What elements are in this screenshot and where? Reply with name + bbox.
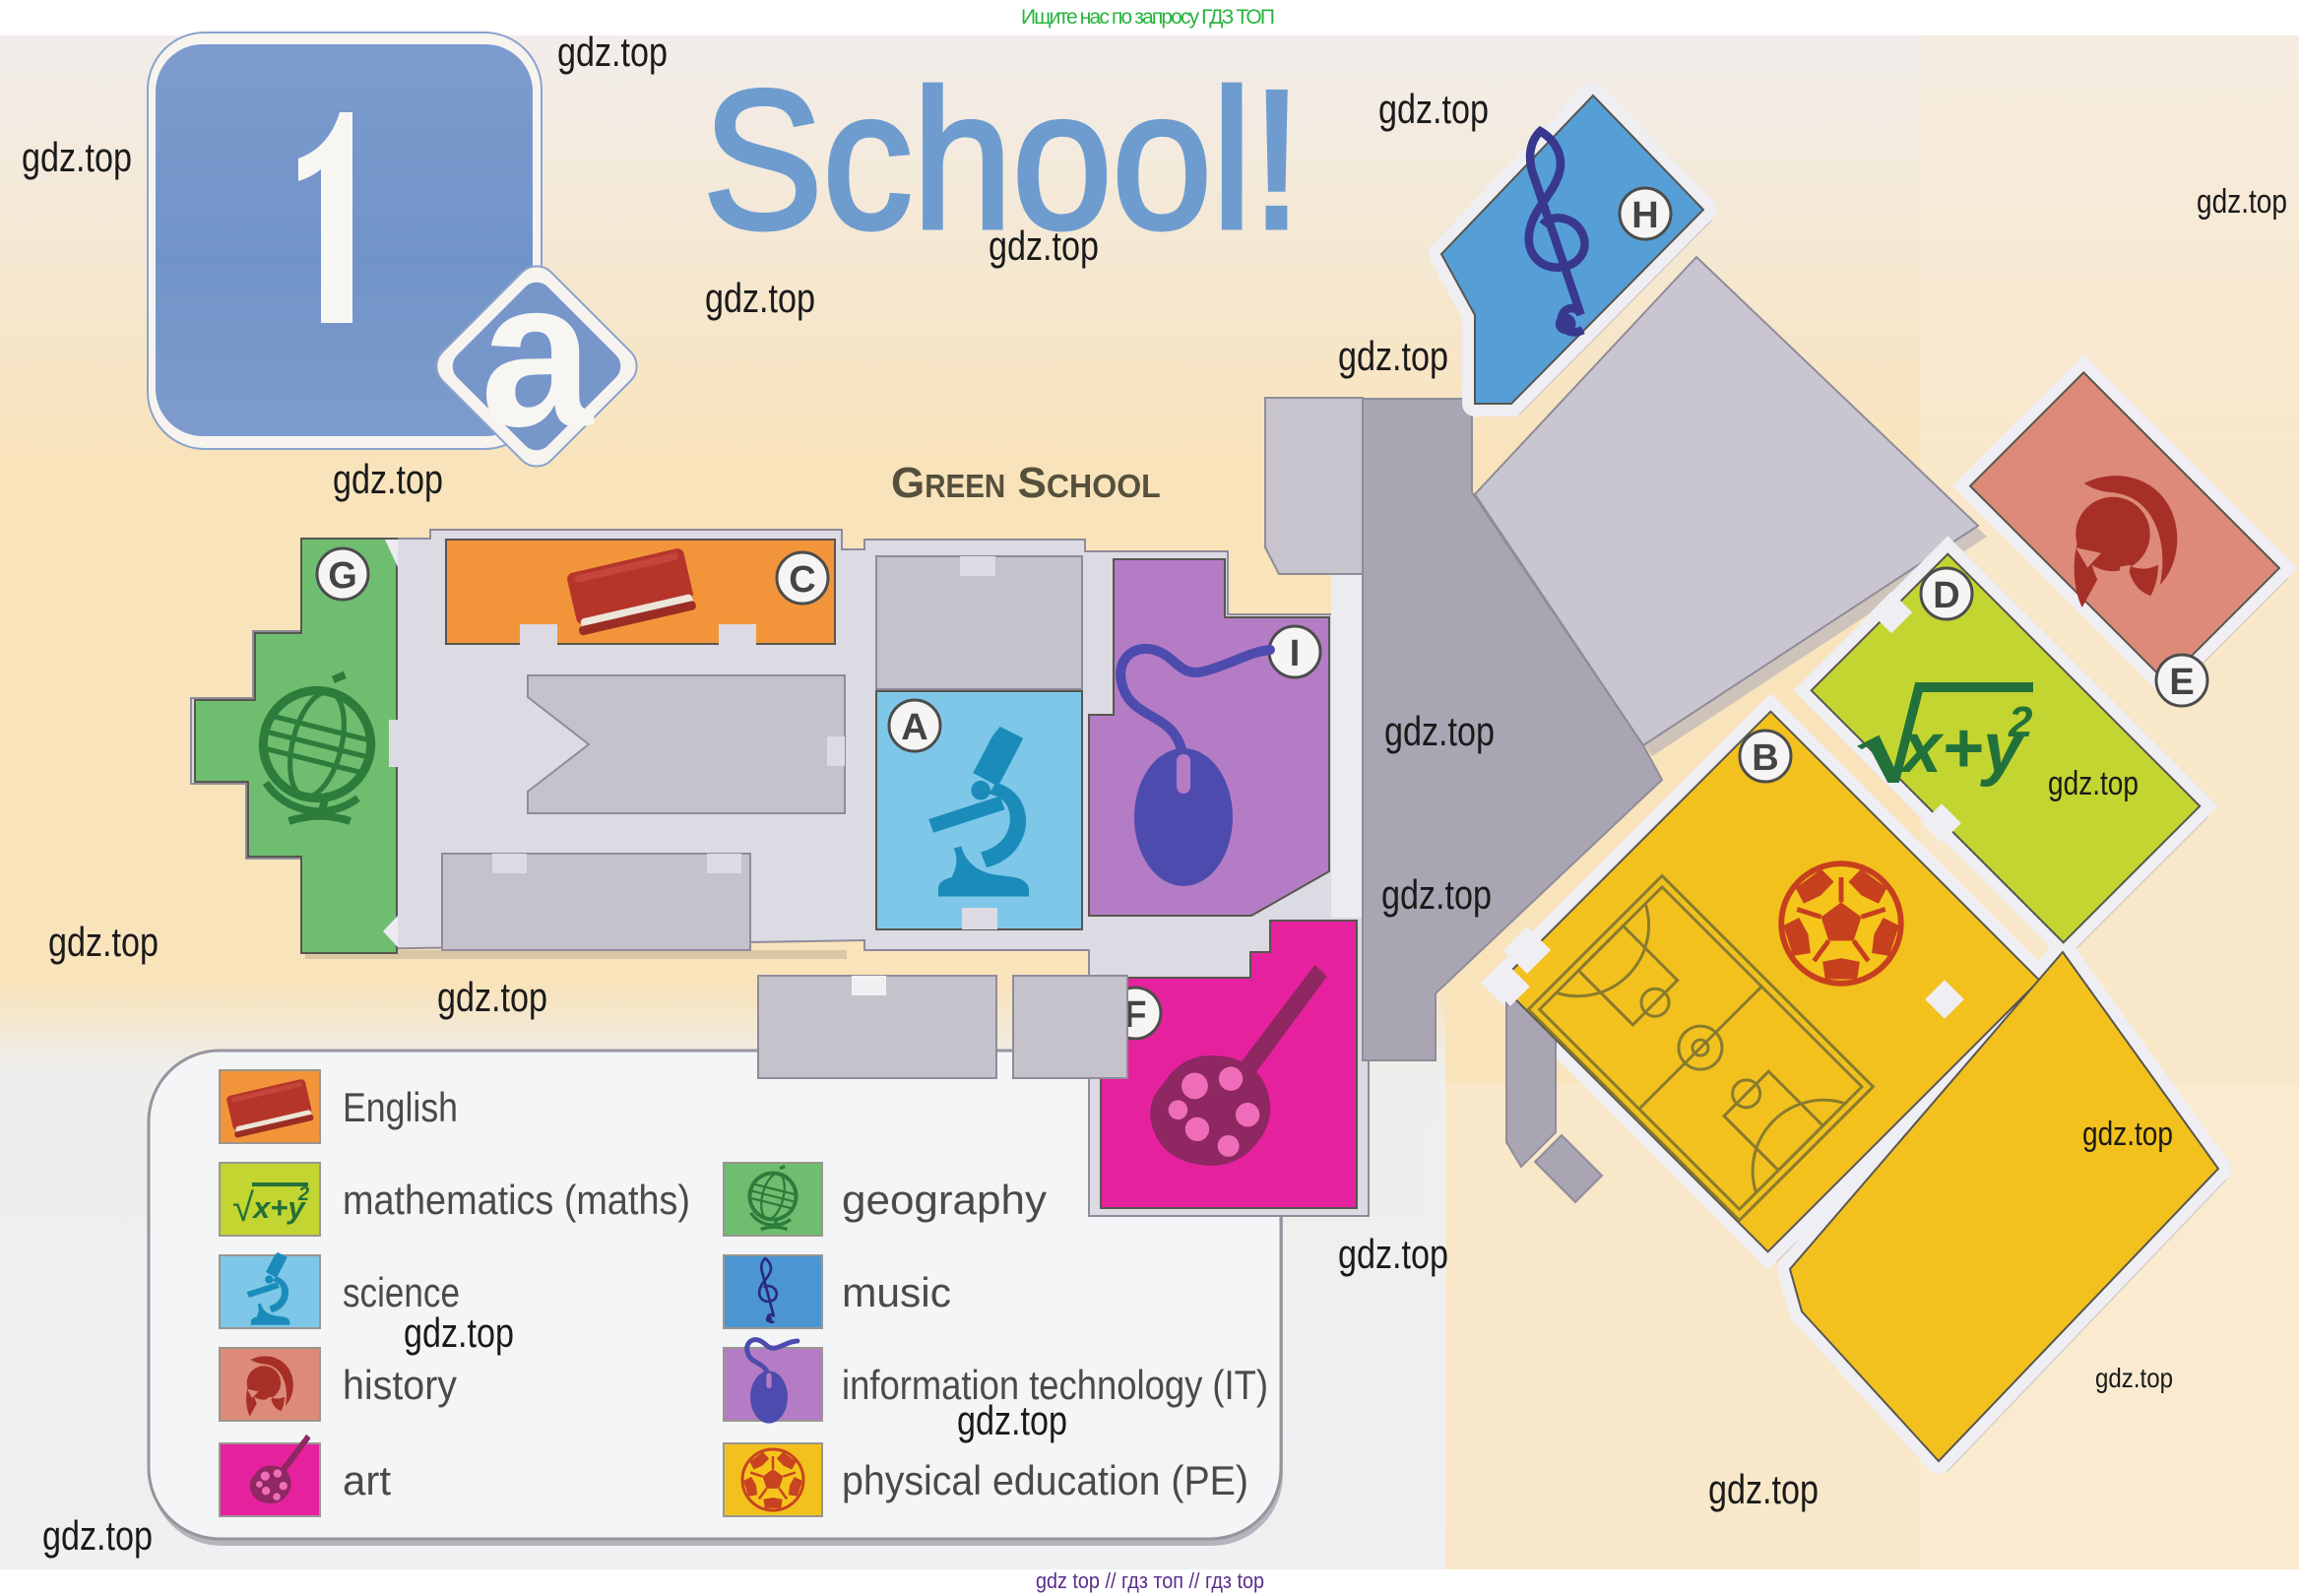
svg-text:gdz.top: gdz.top [557,29,668,75]
svg-text:gdz.top: gdz.top [1381,871,1492,918]
svg-text:gdz.top: gdz.top [1338,1231,1448,1277]
svg-text:2: 2 [297,1183,309,1205]
svg-text:E: E [2169,662,2194,703]
svg-text:gdz.top: gdz.top [22,134,132,180]
svg-text:gdz.top: gdz.top [1708,1466,1819,1512]
svg-text:geography: geography [842,1177,1047,1223]
svg-text:A: A [901,707,927,748]
svg-text:gdz.top: gdz.top [957,1397,1067,1443]
svg-text:√: √ [232,1186,254,1230]
svg-text:gdz.top: gdz.top [1378,86,1489,132]
svg-text:gdz.top: gdz.top [1384,708,1495,754]
svg-text:gdz.top: gdz.top [333,456,443,502]
svg-text:Ищите нас по запросу ГДЗ ТОП: Ищите нас по запросу ГДЗ ТОП [1021,6,1275,29]
svg-text:gdz.top: gdz.top [2048,765,2139,802]
svg-text:gdz.top: gdz.top [437,974,547,1020]
svg-text:art: art [343,1457,391,1503]
svg-text:gdz.top: gdz.top [1338,333,1448,379]
svg-text:a: a [480,236,595,470]
svg-text:gdz.top: gdz.top [42,1512,153,1559]
svg-text:H: H [1631,195,1658,236]
svg-text:C: C [789,559,815,601]
svg-text:gdz.top: gdz.top [48,919,159,965]
svg-text:gdz.top: gdz.top [2197,183,2287,221]
svg-text:science: science [343,1269,460,1315]
svg-text:gdz.top: gdz.top [2095,1363,2173,1393]
svg-text:gdz top // гдз топ // гдз: gdz top // гдз топ // гдз top [1036,1568,1264,1593]
svg-text:mathematics (maths): mathematics (maths) [343,1177,690,1223]
svg-text:D: D [1933,575,1959,616]
svg-text:history: history [343,1362,457,1408]
svg-text:English: English [343,1084,458,1130]
svg-text:2: 2 [2008,698,2033,746]
svg-text:music: music [842,1269,951,1315]
svg-text:B: B [1752,737,1778,779]
svg-text:gdz.top: gdz.top [404,1309,514,1356]
svg-text:gdz.top: gdz.top [705,275,815,321]
svg-text:gdz.top: gdz.top [2082,1116,2173,1153]
svg-text:I: I [1290,633,1301,674]
svg-text:G: G [328,555,357,597]
svg-text:physical education (PE): physical education (PE) [842,1457,1248,1503]
svg-text:x+y: x+y [1898,709,2026,788]
svg-text:gdz.top: gdz.top [989,223,1099,269]
